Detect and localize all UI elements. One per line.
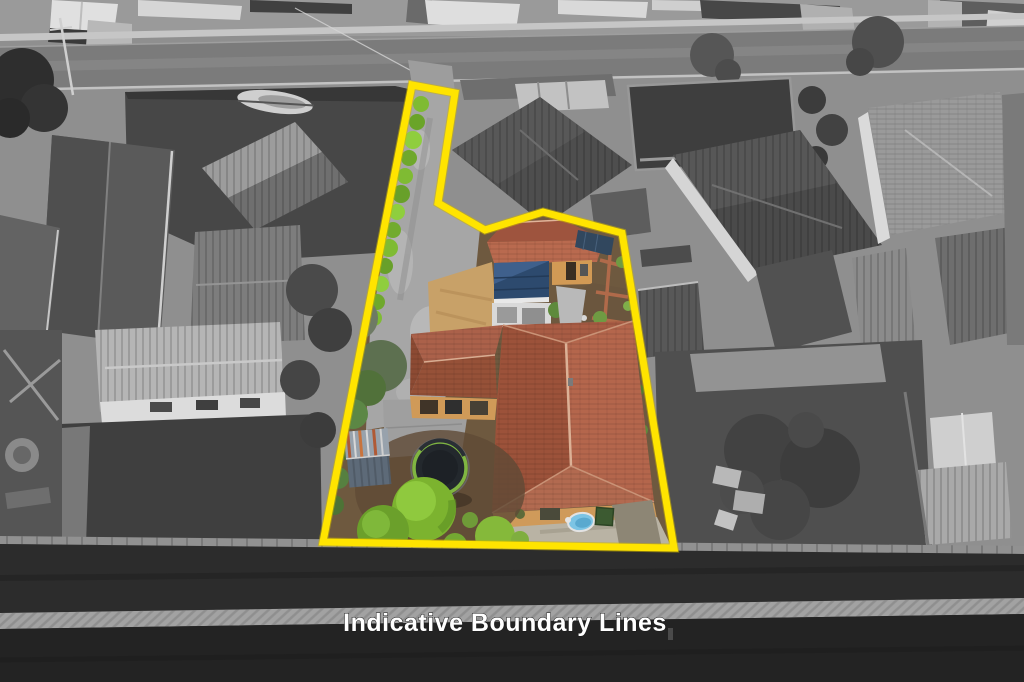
garden-shed (344, 428, 393, 488)
window (580, 264, 588, 276)
door (566, 262, 576, 280)
window (420, 400, 438, 414)
roof-vent (568, 378, 573, 386)
aerial-photo-canvas: Indicative Boundary Lines (0, 0, 1024, 682)
caption: Indicative Boundary Lines (343, 609, 667, 637)
deck-table (497, 307, 517, 323)
window (445, 400, 462, 414)
deck-shadow (522, 308, 545, 324)
industrial-yard (0, 330, 62, 545)
pool-step (565, 517, 571, 523)
bench (540, 508, 560, 520)
aerial-photo: Indicative Boundary Lines (0, 0, 1024, 682)
window (470, 401, 488, 415)
window (150, 402, 172, 412)
backyard-path (60, 426, 90, 545)
shade-cover (595, 507, 613, 525)
backyard-lawn-dark (60, 414, 322, 545)
window (240, 398, 260, 408)
fence-post (668, 628, 673, 640)
window (196, 400, 218, 410)
